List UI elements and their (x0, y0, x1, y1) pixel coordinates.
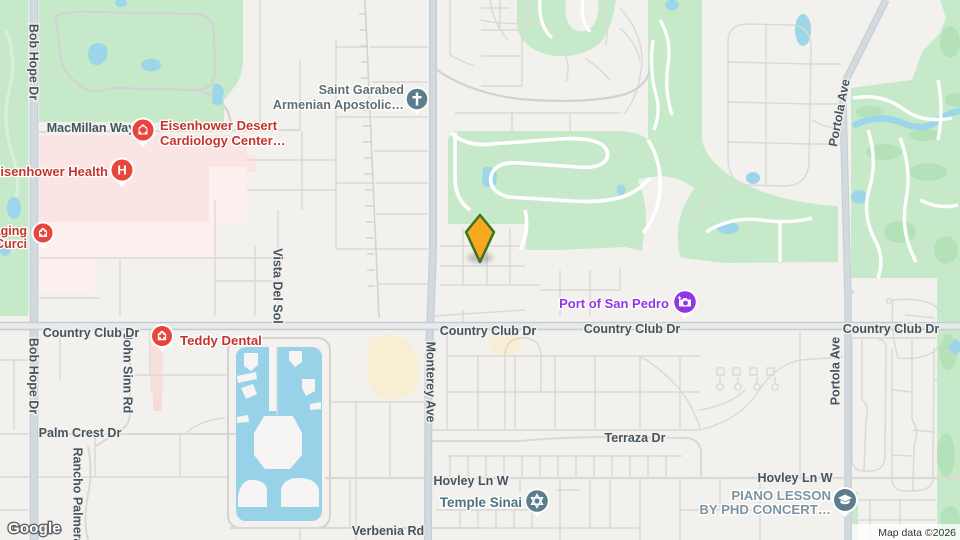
svg-text:Vista Del Sol: Vista Del Sol (271, 248, 285, 324)
svg-text:Palm Crest Dr: Palm Crest Dr (39, 426, 122, 440)
svg-text:Country Club Dr: Country Club Dr (584, 322, 681, 336)
svg-text:Cardiology Center…: Cardiology Center… (160, 133, 286, 148)
svg-text:Temple Sinai: Temple Sinai (440, 495, 522, 510)
svg-text:Bob Hope Dr: Bob Hope Dr (27, 24, 41, 101)
svg-text:Hovley Ln W: Hovley Ln W (433, 474, 508, 488)
svg-text:Country Club Dr: Country Club Dr (843, 322, 940, 336)
svg-text:Verbenia Rd: Verbenia Rd (352, 524, 424, 538)
svg-text:Google: Google (8, 520, 61, 537)
svg-text:Bob Hope Dr: Bob Hope Dr (27, 338, 41, 415)
svg-text:Eisenhower Health: Eisenhower Health (0, 164, 108, 179)
svg-text:Map data ©2026: Map data ©2026 (878, 527, 956, 539)
svg-text:John Sinn Rd: John Sinn Rd (121, 333, 135, 414)
svg-text:aging: aging (0, 224, 27, 238)
svg-text:Rancho Palmeras: Rancho Palmeras (71, 448, 85, 540)
svg-text:Curci: Curci (0, 237, 27, 251)
svg-text:PIANO LESSON: PIANO LESSON (731, 488, 831, 503)
svg-text:Port of San Pedro: Port of San Pedro (559, 296, 669, 311)
svg-text:Teddy Dental: Teddy Dental (180, 333, 262, 348)
svg-text:BY PHD CONCERT…: BY PHD CONCERT… (699, 502, 831, 517)
svg-text:Saint Garabed: Saint Garabed (319, 83, 404, 97)
svg-text:Country Club Dr: Country Club Dr (43, 326, 140, 340)
svg-text:Portola Ave: Portola Ave (828, 337, 842, 406)
svg-text:H: H (117, 163, 126, 178)
svg-text:Armenian Apostolic…: Armenian Apostolic… (273, 98, 404, 112)
svg-text:Monterey Ave: Monterey Ave (424, 341, 438, 422)
svg-text:Country Club Dr: Country Club Dr (440, 324, 537, 338)
svg-text:Terraza Dr: Terraza Dr (605, 431, 666, 445)
svg-text:Eisenhower Desert: Eisenhower Desert (160, 118, 278, 133)
svg-text:MacMillan Way: MacMillan Way (47, 121, 135, 135)
svg-text:Hovley Ln W: Hovley Ln W (757, 471, 832, 485)
